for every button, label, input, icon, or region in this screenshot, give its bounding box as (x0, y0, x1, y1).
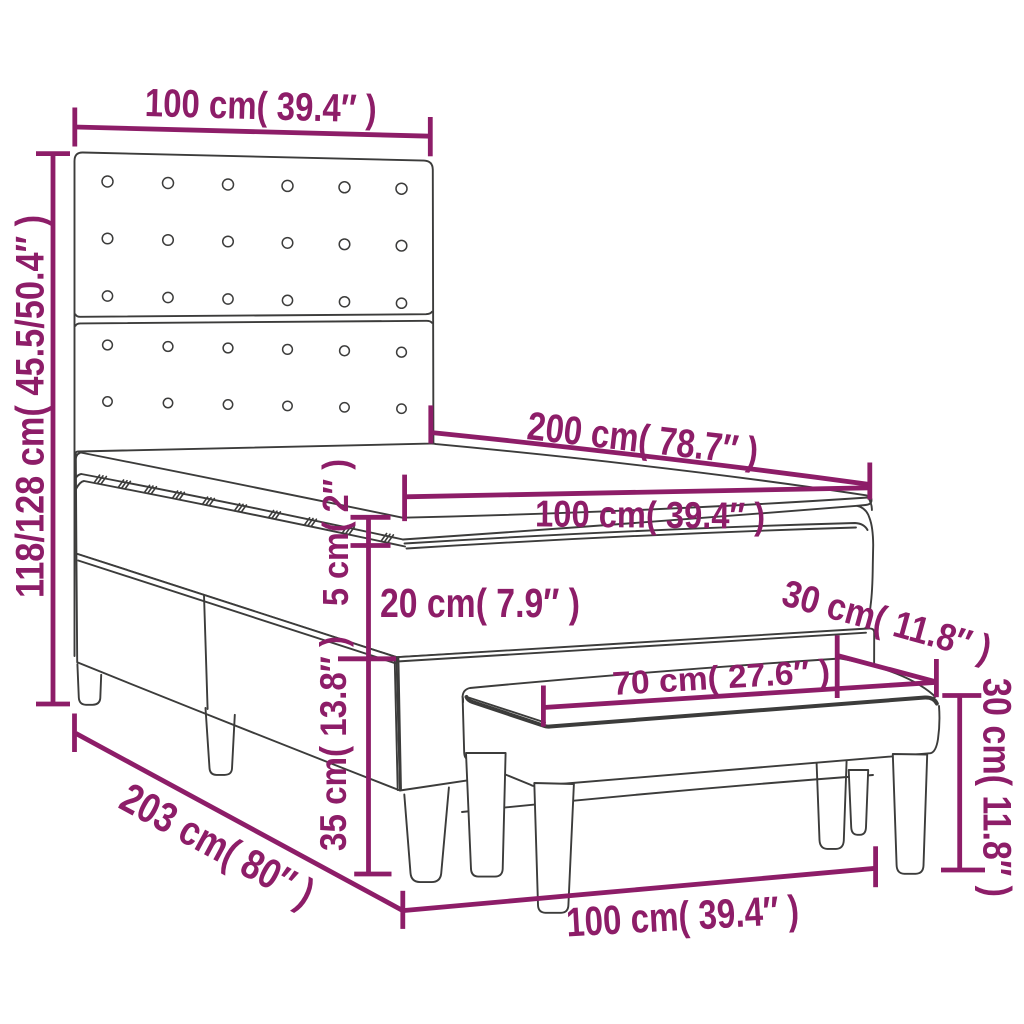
svg-text:118/128 cm( 45.5/50.4″ ): 118/128 cm( 45.5/50.4″ ) (9, 215, 53, 598)
svg-text:100 cm( 39.4″ ): 100 cm( 39.4″ ) (144, 81, 377, 131)
svg-text:35 cm( 13.8″ ): 35 cm( 13.8″ ) (313, 636, 354, 851)
svg-text:30 cm( 11.8″ ): 30 cm( 11.8″ ) (975, 678, 1019, 897)
svg-text:100 cm( 39.4″ ): 100 cm( 39.4″ ) (535, 492, 765, 536)
svg-text:5 cm( 2″ ): 5 cm( 2″ ) (315, 459, 356, 606)
svg-text:20 cm( 7.9″ ): 20 cm( 7.9″ ) (380, 580, 580, 626)
